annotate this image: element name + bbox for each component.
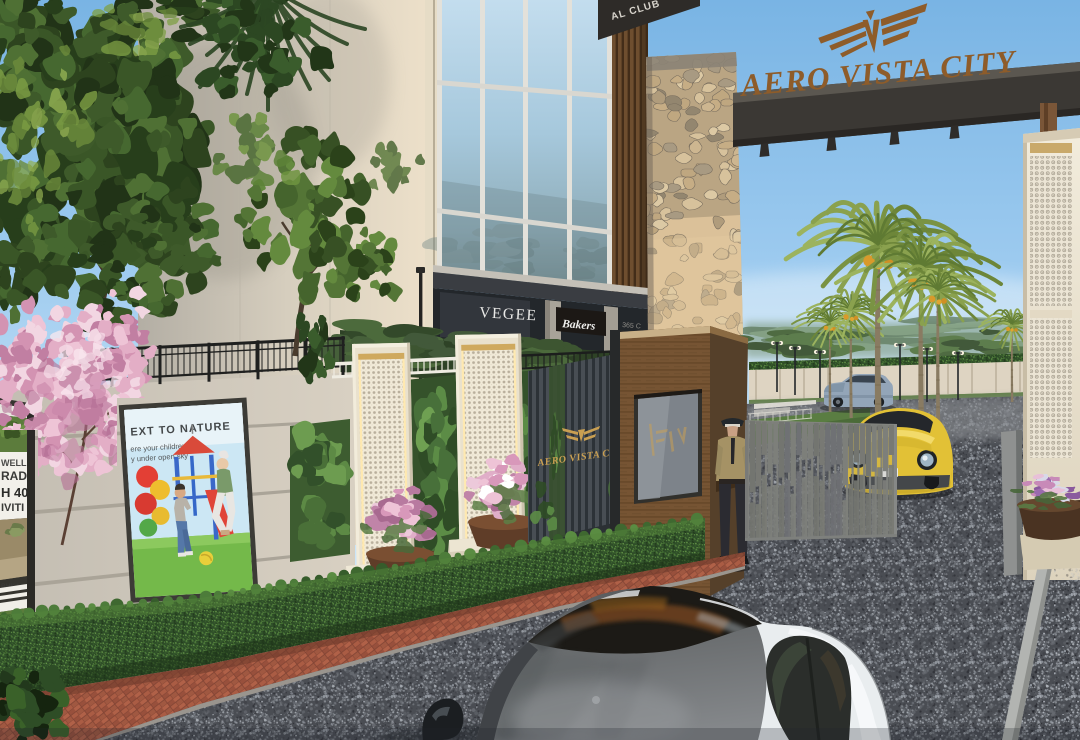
svg-text:IVITI: IVITI [1, 502, 24, 514]
svg-text:365 C: 365 C [622, 322, 641, 330]
svg-text:RAD: RAD [1, 469, 27, 483]
svg-text:VEGEE: VEGEE [479, 304, 538, 324]
svg-text:H 40: H 40 [1, 485, 28, 500]
